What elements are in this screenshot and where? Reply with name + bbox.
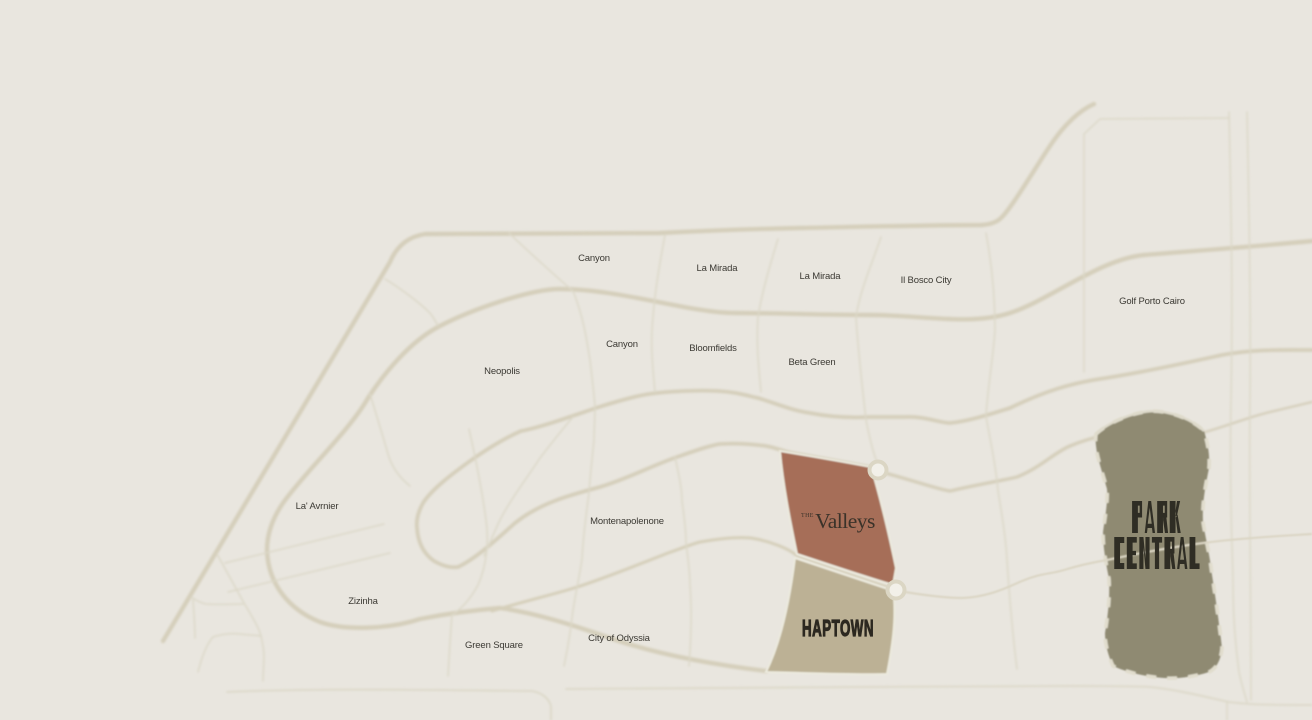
svg-text:HAPTOWN: HAPTOWN [802, 615, 874, 641]
svg-text:Valleys: Valleys [815, 509, 875, 533]
svg-text:Canyon: Canyon [578, 253, 610, 264]
svg-text:Canyon: Canyon [606, 339, 638, 350]
svg-text:Golf Porto Cairo: Golf Porto Cairo [1119, 296, 1185, 307]
svg-text:Beta Green: Beta Green [788, 357, 835, 368]
svg-text:Montenapolenone: Montenapolenone [590, 516, 664, 527]
svg-text:Il Bosco City: Il Bosco City [901, 275, 952, 286]
svg-text:Bloomfields: Bloomfields [689, 343, 737, 354]
svg-text:City of Odyssia: City of Odyssia [588, 633, 650, 644]
svg-text:Zizinha: Zizinha [348, 596, 378, 607]
svg-text:Green Square: Green Square [465, 640, 523, 651]
svg-text:La' Avrnier: La' Avrnier [296, 501, 339, 512]
svg-text:Neopolis: Neopolis [484, 366, 520, 377]
svg-text:La Mirada: La Mirada [697, 263, 739, 274]
svg-text:La Mirada: La Mirada [800, 271, 842, 282]
svg-text:THE: THE [801, 513, 814, 519]
